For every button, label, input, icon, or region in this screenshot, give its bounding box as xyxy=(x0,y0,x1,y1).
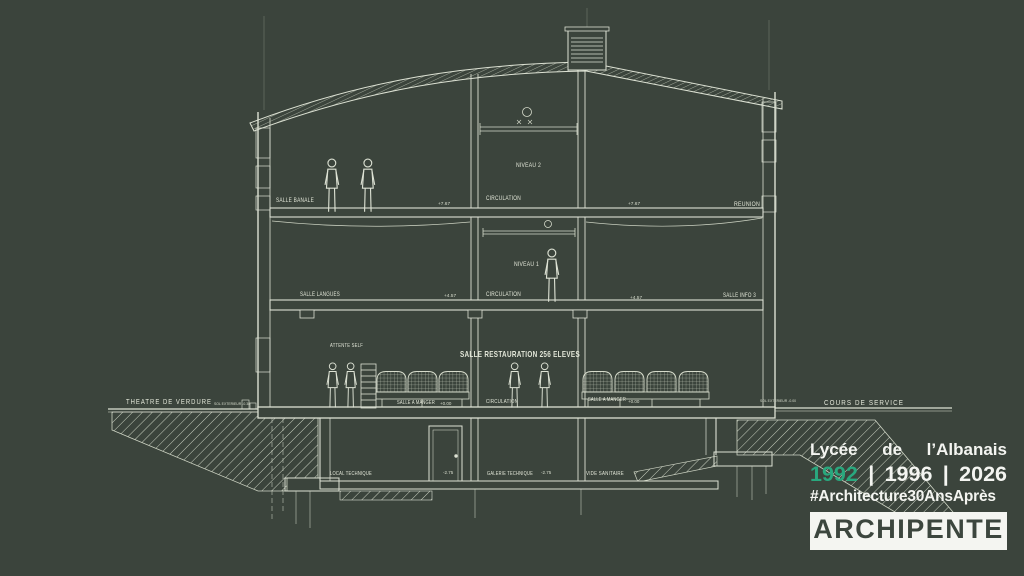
level-soussol-right: -2.75 xyxy=(541,470,552,475)
label-salle-a-manger-right: SALLE A MANGER xyxy=(588,397,626,403)
level-soussol-left: -2.75 xyxy=(443,470,454,475)
label-salle-banale: SALLE BANALE xyxy=(276,198,314,204)
label-salle-a-manger-left: SALLE A MANGER xyxy=(397,400,435,406)
label-circulation-n1: CIRCULATION xyxy=(486,292,521,298)
label-salle-restauration: SALLE RESTAURATION 256 ELEVES xyxy=(460,349,580,359)
archipente-logo: ARCHIPENTE xyxy=(810,512,1007,550)
level-niveau2-left: +7.67 xyxy=(438,201,450,207)
roof-vent-stack xyxy=(565,27,609,70)
roof xyxy=(250,62,782,131)
label-reunion: REUNION xyxy=(734,202,760,208)
archipente-logo-text: ARCHIPENTE xyxy=(813,514,1004,544)
project-hashtag: #Architecture30AnsAprès xyxy=(810,488,1007,506)
label-galerie-technique: GALERIE TECHNIQUE xyxy=(487,471,533,477)
label-local-technique: LOCAL TECHNIQUE xyxy=(330,471,372,477)
label-circulation-rdc: CIRCULATION xyxy=(486,399,518,405)
slide: SALLE BANALE NIVEAU 2 CIRCULATION REUNIO… xyxy=(0,0,1024,576)
level-rdc-right: +0.00 xyxy=(628,399,640,404)
year-separator: | xyxy=(943,463,949,486)
year-2026: 2026 xyxy=(959,463,1007,486)
label-cours-de-service: COURS DE SERVICE xyxy=(824,398,904,407)
level-niveau2-right: +7.67 xyxy=(628,201,640,207)
label-vide-sanitaire: VIDE SANITAIRE xyxy=(586,471,624,477)
label-niveau-1: NIVEAU 1 xyxy=(514,262,539,268)
project-title-word-3: l’Albanais xyxy=(927,441,1007,460)
ceiling-curves xyxy=(272,218,762,226)
level-niveau1-right: +4.57 xyxy=(630,295,642,301)
label-salle-info-3: SALLE INFO 3 xyxy=(723,293,756,299)
label-theatre-de-verdure: THEATRE DE VERDURE xyxy=(126,397,212,406)
suspended-elements xyxy=(480,108,577,238)
project-title: Lycée de l’Albanais xyxy=(810,441,1007,460)
label-attente-self: ATTENTE SELF xyxy=(330,343,363,349)
branding-block: Lycée de l’Albanais 1992 | 1996 | 2026 #… xyxy=(810,441,1007,550)
project-title-word-2: de xyxy=(882,441,902,460)
project-years: 1992 | 1996 | 2026 xyxy=(810,463,1007,486)
label-circulation-n2: CIRCULATION xyxy=(486,196,521,202)
label-sol-exterieur-left: SOL EXTERIEUR -0.38 xyxy=(214,402,250,406)
year-separator: | xyxy=(868,463,874,486)
label-salle-langues: SALLE LANGUES xyxy=(300,292,340,298)
year-1996: 1996 xyxy=(885,463,933,486)
interior-walls xyxy=(471,70,585,481)
project-title-word-1: Lycée xyxy=(810,441,858,460)
level-niveau1-left: +4.57 xyxy=(444,293,456,299)
label-niveau-2: NIVEAU 2 xyxy=(516,163,541,169)
self-service-cabinet xyxy=(361,364,376,408)
human-figures xyxy=(325,159,559,407)
level-rdc-left: +0.00 xyxy=(440,401,452,406)
year-1992: 1992 xyxy=(810,463,858,486)
label-sol-exterieur-right: SOL EXTERIEUR -0.00 xyxy=(760,399,796,403)
earth-hatching-left xyxy=(112,412,318,491)
exterior-walls xyxy=(256,92,776,408)
